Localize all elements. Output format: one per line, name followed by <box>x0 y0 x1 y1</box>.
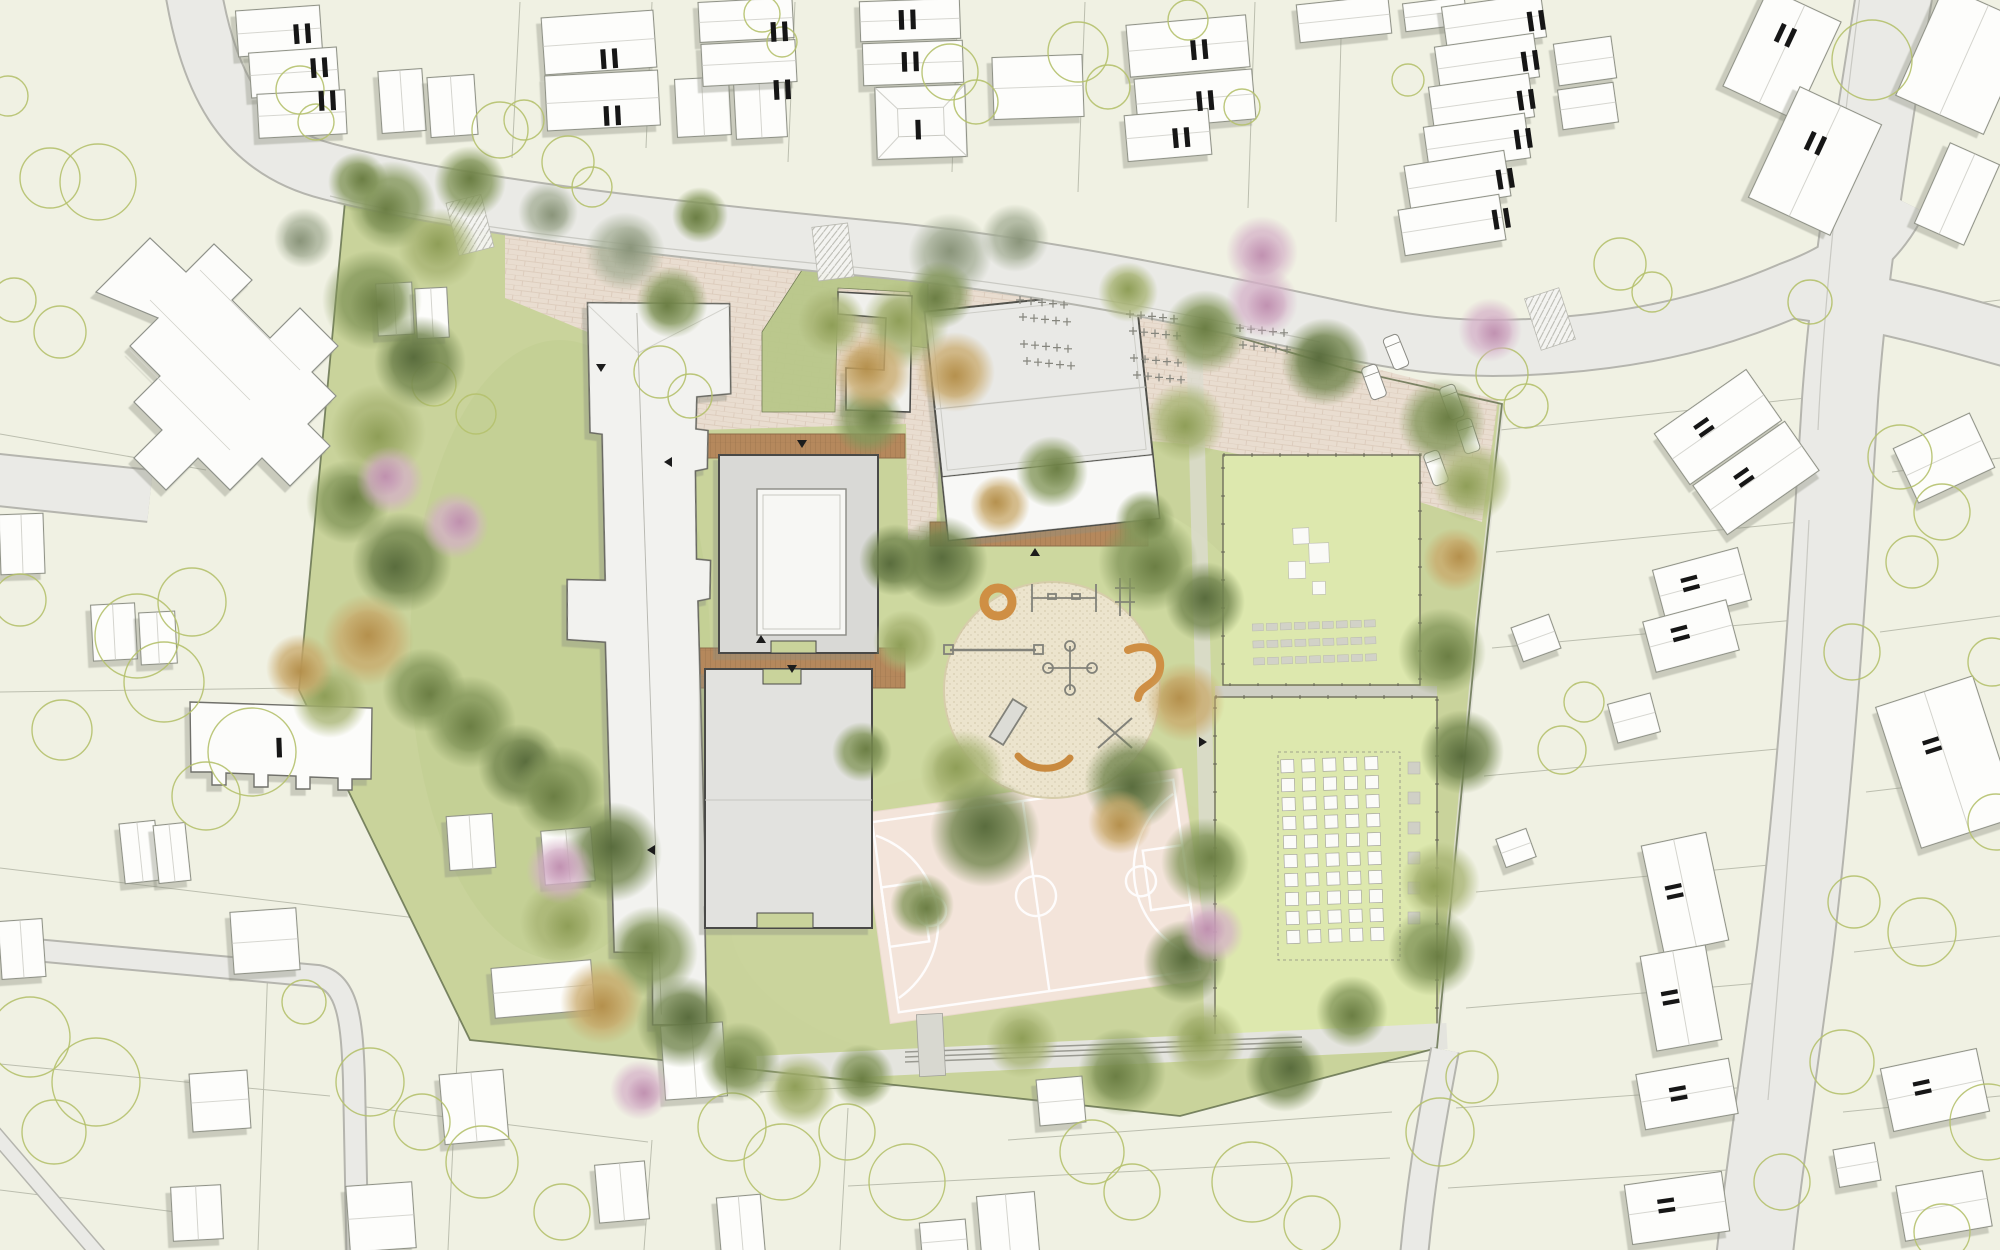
tree-canopy <box>1165 562 1245 642</box>
raised-garden-bed <box>1350 928 1363 941</box>
raised-garden-bed <box>1367 813 1380 826</box>
site-plan-map: IIIIIIIIIIIIIIIIIIIIIIIIIIIIIIIIIIIIIIII… <box>0 0 2000 1250</box>
house <box>0 513 45 574</box>
storey-label: II <box>1514 84 1541 118</box>
raised-garden-bed <box>1281 778 1294 791</box>
raised-garden-bed <box>1329 929 1342 942</box>
outdoor-bench <box>1280 623 1291 630</box>
garden-shed-plot <box>1408 762 1420 774</box>
outdoor-bench <box>1365 654 1376 661</box>
storey-label: II <box>771 75 796 107</box>
house <box>427 74 478 137</box>
house <box>976 1192 1039 1250</box>
site-plan-canvas: IIIIIIIIIIIIIIIIIIIIIIIIIIIIIIIIIIIIIIII… <box>0 0 2000 1250</box>
house <box>1557 82 1618 129</box>
tree-canopy <box>636 266 708 338</box>
tree-canopy <box>764 1054 836 1126</box>
outdoor-bench <box>1295 639 1306 646</box>
outdoor-bench <box>1253 641 1264 648</box>
raised-garden-bed <box>1283 816 1296 829</box>
raised-garden-bed <box>1365 756 1378 769</box>
house <box>346 1182 416 1250</box>
storey-label: II <box>1651 1195 1679 1218</box>
tree-canopy <box>1161 818 1249 906</box>
storey-label: II <box>307 53 332 86</box>
outdoor-bench <box>1308 622 1319 629</box>
house <box>595 1161 650 1223</box>
storey-label: II <box>1193 85 1219 118</box>
outdoor-bench <box>1267 640 1278 647</box>
outdoor-bench <box>1336 621 1347 628</box>
outdoor-bench <box>1323 638 1334 645</box>
classroom-building <box>705 669 872 928</box>
house <box>153 822 191 883</box>
tree-canopy <box>1432 442 1512 522</box>
house <box>1553 36 1616 86</box>
raised-garden-bed <box>1287 930 1300 943</box>
tree-canopy <box>981 204 1049 272</box>
raised-garden-bed <box>1370 908 1383 921</box>
raised-garden-bed <box>1325 834 1338 847</box>
lawn-platform <box>1288 561 1306 579</box>
outdoor-bench <box>1364 620 1375 627</box>
raised-garden-bed <box>1369 870 1382 883</box>
raised-garden-bed <box>1304 816 1317 829</box>
house <box>378 69 426 134</box>
house <box>139 611 178 665</box>
tree-canopy <box>1458 298 1522 362</box>
tree-canopy <box>1316 976 1388 1048</box>
raised-garden-bed <box>1346 833 1359 846</box>
storey-label: II <box>1524 5 1551 39</box>
tree-canopy <box>873 610 937 674</box>
lawn-platform <box>1309 543 1330 564</box>
raised-garden-bed <box>1349 909 1362 922</box>
outdoor-bench <box>1309 656 1320 663</box>
tree-canopy <box>930 777 1040 887</box>
outdoor-bench <box>1294 622 1305 629</box>
storey-label: II <box>1187 34 1213 67</box>
raised-garden-bed <box>1369 889 1382 902</box>
raised-garden-bed <box>1302 778 1315 791</box>
storey-label: II <box>1488 203 1516 237</box>
tree-canopy <box>970 475 1030 535</box>
tree-canopy <box>1145 382 1225 462</box>
tree-canopy <box>518 182 578 242</box>
raised-garden-bed <box>1327 891 1340 904</box>
lawn-platform <box>1293 528 1310 545</box>
raised-garden-bed <box>1286 911 1299 924</box>
outdoor-bench <box>1365 637 1376 644</box>
raised-garden-bed <box>1365 775 1378 788</box>
raised-garden-bed <box>1285 892 1298 905</box>
house <box>439 1069 509 1144</box>
raised-garden-bed <box>1366 794 1379 807</box>
tree-canopy <box>1226 216 1298 288</box>
raised-garden-bed <box>1302 759 1315 772</box>
storey-label: II <box>601 101 626 133</box>
outdoor-bench <box>1309 639 1320 646</box>
raised-garden-bed <box>1323 777 1336 790</box>
raised-garden-bed <box>1328 910 1341 923</box>
multi-use-lawn <box>1223 455 1420 685</box>
outdoor-bench <box>1266 623 1277 630</box>
outdoor-bench <box>1351 654 1362 661</box>
outdoor-bench <box>1253 658 1264 665</box>
tree-canopy <box>798 288 866 356</box>
field-divider <box>1215 686 1437 698</box>
house <box>171 1185 224 1242</box>
raised-garden-bed <box>1367 832 1380 845</box>
tree-canopy <box>434 146 506 218</box>
tree-canopy <box>1078 1028 1166 1116</box>
house <box>0 919 46 980</box>
tree-canopy <box>1088 790 1152 854</box>
tree-canopy <box>1165 1002 1245 1082</box>
storey-label: II <box>1518 45 1545 79</box>
storey-label: II <box>1492 163 1520 197</box>
tree-canopy <box>356 446 424 514</box>
house <box>1036 1076 1086 1126</box>
tree-canopy <box>421 491 489 559</box>
storey-label: II <box>896 5 920 37</box>
raised-garden-bed <box>1346 814 1359 827</box>
tree-canopy <box>832 722 892 782</box>
storey-label: II <box>597 44 622 77</box>
tree-canopy <box>830 1044 894 1108</box>
raised-garden-bed <box>1305 854 1318 867</box>
raised-garden-bed <box>1284 854 1297 867</box>
storey-label: I <box>274 733 287 764</box>
tree-canopy <box>1398 608 1486 696</box>
tree-canopy <box>526 836 594 904</box>
tree-canopy <box>1245 1032 1325 1112</box>
outdoor-bench <box>1267 657 1278 664</box>
outdoor-bench <box>1337 655 1348 662</box>
storey-label: II <box>1169 122 1195 155</box>
house <box>189 1070 251 1132</box>
raised-garden-bed <box>1304 835 1317 848</box>
tree-canopy <box>906 261 974 329</box>
house <box>992 54 1084 119</box>
house <box>716 1194 765 1250</box>
outdoor-bench <box>1337 638 1348 645</box>
raised-garden-bed <box>1345 795 1358 808</box>
raised-garden-bed <box>1326 853 1339 866</box>
raised-garden-bed <box>1327 872 1340 885</box>
raised-garden-bed <box>1348 871 1361 884</box>
raised-garden-bed <box>1348 890 1361 903</box>
tree-canopy <box>890 873 954 937</box>
outdoor-bench <box>1322 621 1333 628</box>
garden-shed-plot <box>1408 822 1420 834</box>
tree-canopy <box>1420 710 1504 794</box>
house <box>230 908 300 974</box>
raised-garden-bed <box>1371 927 1384 940</box>
raised-garden-bed <box>1344 757 1357 770</box>
classroom-building-with-courtyard <box>719 455 878 653</box>
tree-canopy <box>915 332 995 412</box>
outdoor-bench <box>1281 640 1292 647</box>
raised-garden-bed <box>1323 758 1336 771</box>
tree-canopy <box>1115 490 1175 550</box>
raised-garden-bed <box>1307 911 1320 924</box>
tree-canopy <box>1281 318 1369 406</box>
raised-garden-bed <box>1368 851 1381 864</box>
raised-garden-bed <box>1285 873 1298 886</box>
tree-canopy <box>986 1006 1058 1078</box>
house <box>1833 1143 1881 1188</box>
tree-canopy <box>672 187 728 243</box>
tree-canopy <box>610 1060 670 1120</box>
raised-garden-bed <box>1347 852 1360 865</box>
raised-garden-bed <box>1306 892 1319 905</box>
tree-canopy <box>859 524 931 596</box>
tree-canopy <box>274 208 334 268</box>
raised-garden-bed <box>1308 930 1321 943</box>
tree-canopy <box>1098 262 1158 322</box>
raised-garden-bed <box>1303 797 1316 810</box>
outdoor-bench <box>1252 624 1263 631</box>
house <box>919 1219 968 1250</box>
raised-garden-bed <box>1282 797 1295 810</box>
raised-garden-bed <box>1325 815 1338 828</box>
outdoor-bench <box>1351 637 1362 644</box>
raised-garden-bed <box>1324 796 1337 809</box>
outdoor-bench <box>1323 655 1334 662</box>
tree-canopy <box>560 960 644 1044</box>
tree-canopy <box>1388 908 1476 996</box>
storey-label: I <box>913 115 926 146</box>
storey-label: II <box>899 47 923 79</box>
storey-label: II <box>290 19 315 52</box>
garden-shed-plot <box>1408 792 1420 804</box>
storey-label: II <box>316 86 341 118</box>
tree-canopy <box>1180 900 1244 964</box>
outdoor-bench <box>1350 620 1361 627</box>
outdoor-bench <box>1295 656 1306 663</box>
tree-canopy <box>1423 528 1487 592</box>
tree-canopy <box>328 152 388 212</box>
lawn-platform <box>1312 581 1325 594</box>
raised-garden-bed <box>1306 873 1319 886</box>
tree-canopy <box>1145 662 1225 742</box>
house <box>446 813 496 870</box>
raised-garden-bed <box>1283 835 1296 848</box>
storey-label: II <box>1511 123 1538 157</box>
raised-garden-bed <box>1281 759 1294 772</box>
raised-garden-bed <box>1344 776 1357 789</box>
outdoor-bench <box>1281 657 1292 664</box>
tree-canopy <box>266 634 334 702</box>
storey-label: II <box>768 17 793 49</box>
